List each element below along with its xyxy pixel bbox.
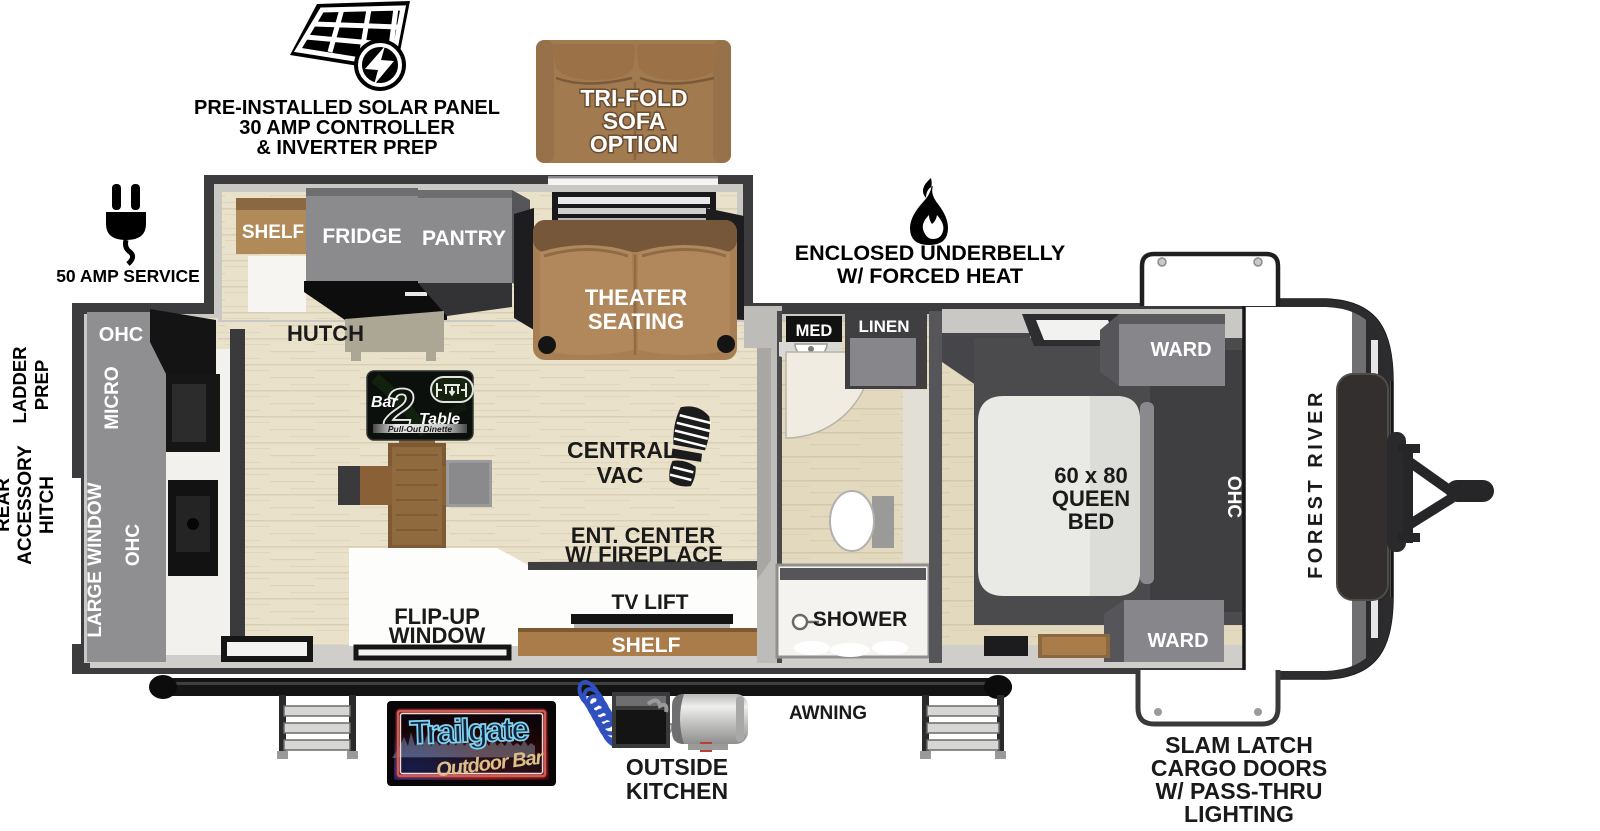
svg-text:WINDOW: WINDOW — [389, 623, 486, 648]
svg-text:Pull-Out Dinette: Pull-Out Dinette — [388, 424, 452, 434]
svg-text:PANTRY: PANTRY — [422, 227, 506, 250]
svg-text:PRE-INSTALLED SOLAR PANEL: PRE-INSTALLED SOLAR PANEL — [194, 97, 500, 119]
svg-text:SHELF: SHELF — [242, 222, 304, 243]
svg-text:WARD: WARD — [1147, 630, 1208, 652]
svg-text:PREP: PREP — [31, 360, 52, 410]
svg-text:QUEEN: QUEEN — [1052, 486, 1130, 511]
svg-text:FRIDGE: FRIDGE — [322, 225, 401, 248]
svg-text:THEATER: THEATER — [585, 285, 687, 310]
svg-text:SEATING: SEATING — [588, 309, 684, 334]
svg-text:ACCESSORY: ACCESSORY — [15, 445, 36, 565]
svg-text:FOREST RIVER: FOREST RIVER — [1305, 389, 1327, 579]
svg-text:OHC: OHC — [123, 524, 144, 567]
svg-text:HITCH: HITCH — [37, 476, 58, 534]
svg-text:SHELF: SHELF — [612, 634, 681, 657]
svg-text:LINEN: LINEN — [859, 317, 910, 336]
svg-text:AWNING: AWNING — [789, 703, 867, 724]
svg-text:BED: BED — [1068, 509, 1114, 534]
svg-text:30 AMP CONTROLLER: 30 AMP CONTROLLER — [239, 117, 455, 139]
svg-text:WARD: WARD — [1150, 339, 1211, 361]
svg-text:60 x 80: 60 x 80 — [1054, 463, 1127, 488]
svg-text:LIGHTING: LIGHTING — [1184, 801, 1294, 827]
svg-text:W/ FIREPLACE: W/ FIREPLACE — [565, 542, 723, 567]
svg-text:50 AMP SERVICE: 50 AMP SERVICE — [56, 266, 200, 286]
svg-text:CENTRAL: CENTRAL — [567, 437, 677, 463]
svg-text:& INVERTER PREP: & INVERTER PREP — [256, 137, 437, 159]
svg-text:HUTCH: HUTCH — [287, 321, 364, 346]
svg-text:OHC: OHC — [1223, 476, 1244, 519]
svg-text:OUTSIDE: OUTSIDE — [626, 754, 728, 780]
svg-text:LADDER: LADDER — [9, 346, 30, 423]
svg-text:Trailgate: Trailgate — [409, 710, 530, 751]
svg-text:REAR: REAR — [0, 478, 14, 532]
svg-text:MED: MED — [796, 322, 833, 340]
svg-text:VAC: VAC — [597, 462, 644, 488]
svg-text:ENCLOSED UNDERBELLY: ENCLOSED UNDERBELLY — [795, 241, 1065, 265]
svg-text:KITCHEN: KITCHEN — [626, 778, 728, 804]
svg-text:SHOWER: SHOWER — [813, 608, 908, 631]
svg-text:OPTION: OPTION — [590, 131, 678, 157]
svg-text:Bar: Bar — [371, 394, 398, 411]
svg-text:LARGE WINDOW: LARGE WINDOW — [85, 482, 106, 637]
svg-text:OHC: OHC — [99, 324, 143, 346]
svg-text:W/ FORCED HEAT: W/ FORCED HEAT — [837, 264, 1023, 288]
svg-text:MICRO: MICRO — [102, 366, 123, 429]
svg-text:TV LIFT: TV LIFT — [612, 591, 689, 614]
